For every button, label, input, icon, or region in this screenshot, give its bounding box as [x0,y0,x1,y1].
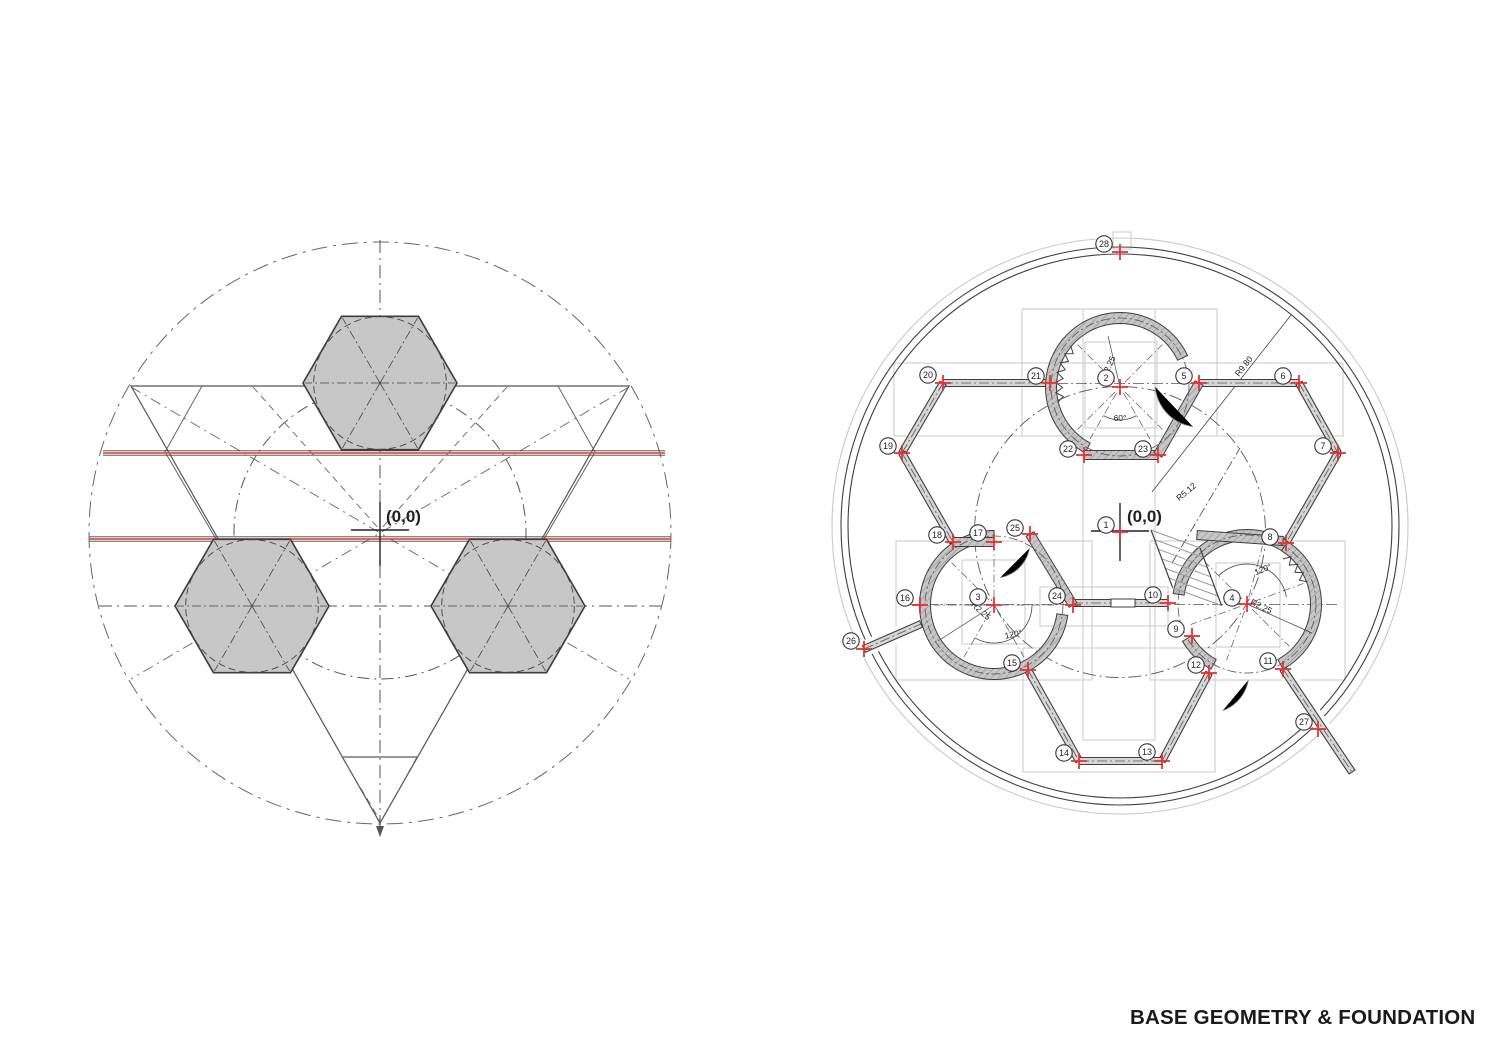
dimension-label: R2.25 [1249,597,1274,616]
marker-number: 19 [883,441,893,451]
marker-number: 26 [846,636,856,646]
marker-number: 14 [1059,748,1069,758]
walkway [1025,668,1082,762]
stair-tread [1151,530,1200,548]
marker-number: 10 [1148,590,1158,600]
marker-number: 23 [1138,444,1148,454]
pod-spoke [1124,393,1151,439]
marker-number: 25 [1010,523,1020,533]
marker-number: 4 [1229,593,1234,603]
base-geometry-and-foundation-drawing: (0,0) (0,0)R9.80R5.12R2.25R2.25R2.2560°1… [0,0,1500,1060]
marker-number: 20 [923,370,933,380]
marker-number: 9 [1173,624,1178,634]
marker-number: 7 [1320,441,1325,451]
door-swing-arc [1223,680,1249,711]
walkway [899,451,956,543]
marker-number: 5 [1181,371,1186,381]
pod-spoke [1226,611,1244,661]
centerline-arrowhead [376,826,384,837]
stair-stringer [1151,530,1173,588]
stair-stringer [1200,548,1222,606]
marker-number: 1 [1103,520,1108,530]
stair-tread [1173,588,1222,606]
angle-label: 60° [1114,413,1127,423]
marker-number: 17 [973,528,983,538]
drawing-sheet: (0,0) (0,0)R9.80R5.12R2.25R2.25R2.2560°1… [0,0,1500,1060]
marker-number: 3 [975,592,980,602]
marker-number: 22 [1063,444,1073,454]
stair-tread [1155,540,1204,558]
marker-number: 13 [1142,747,1152,757]
sheet-title: BASE GEOMETRY & FOUNDATION [1130,1006,1475,1030]
pod-spoke [1090,393,1117,439]
connector-door [1111,599,1135,607]
marker-number: 27 [1299,717,1309,727]
foundation-plan-diagram: (0,0)R9.80R5.12R2.25R2.25R2.2560°120°120… [832,232,1408,814]
construction-line [544,386,595,539]
walkway [1283,451,1341,545]
marker-number: 16 [900,593,910,603]
construction-line [165,386,216,539]
origin-label: (0,0) [1127,507,1162,526]
dimension-label: R5.12 [1174,480,1198,502]
angle-label: 120° [1253,561,1273,577]
origin-label: (0,0) [386,507,421,526]
foundation-slab-outline [1113,232,1131,249]
base-geometry-diagram: (0,0) [89,240,671,837]
marker-number: 18 [932,530,942,540]
marker-number: 21 [1031,371,1041,381]
pod-spoke [1254,583,1304,601]
marker-number: 2 [1103,373,1108,383]
marker-number: 15 [1007,658,1017,668]
marker-number: 11 [1263,656,1272,666]
marker-number: 12 [1191,660,1201,670]
angle-label: 120° [1004,627,1023,640]
marker-number: 24 [1052,591,1062,601]
pod-wall-hatch [1278,542,1322,670]
dimension-label: R9.80 [1233,354,1255,378]
marker-number: 28 [1099,239,1109,249]
marker-number: 6 [1280,371,1285,381]
marker-number: 8 [1267,532,1272,542]
